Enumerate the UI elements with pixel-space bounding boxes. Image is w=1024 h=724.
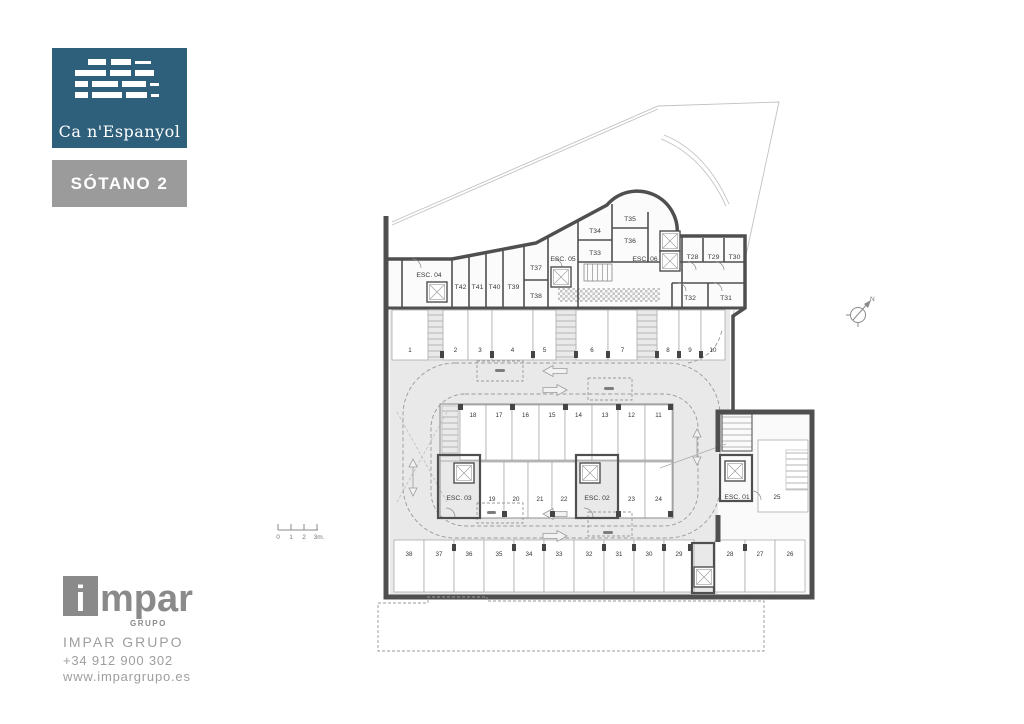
parking-spot-number: 38 bbox=[406, 551, 413, 558]
parking-spot-number: 18 bbox=[470, 412, 477, 419]
stair-label: ESC. 03 bbox=[446, 495, 472, 502]
parking-spot-number: 24 bbox=[655, 496, 662, 503]
parking-spot-number: 3 bbox=[478, 347, 482, 354]
parking-spot-number: 5 bbox=[543, 347, 547, 354]
parking-spot-number: 13 bbox=[602, 412, 609, 419]
parking-spot-number: 20 bbox=[513, 496, 520, 503]
parking-spot-number: 32 bbox=[586, 551, 593, 558]
scale-tick-label: 1 bbox=[289, 534, 293, 541]
parking-spot-number: 1 bbox=[408, 347, 412, 354]
parking-spot-number: 27 bbox=[757, 551, 764, 558]
parking-spot-number: 26 bbox=[787, 551, 794, 558]
parking-spot-number: 19 bbox=[489, 496, 496, 503]
parking-spot-number: 30 bbox=[646, 551, 653, 558]
parking-spot-number: 11 bbox=[655, 412, 662, 419]
elevator-icon bbox=[660, 231, 680, 251]
elevator-icon bbox=[660, 251, 680, 271]
room-label: T37 bbox=[530, 265, 542, 272]
parking-spot-number: 15 bbox=[549, 412, 556, 419]
elevator-icon bbox=[551, 267, 571, 287]
parking-spot-number: 31 bbox=[616, 551, 623, 558]
elevator-icon bbox=[580, 463, 600, 483]
room-label: T30 bbox=[729, 254, 741, 261]
parking-spot-number: 36 bbox=[466, 551, 473, 558]
parking-spot-number: 8 bbox=[666, 347, 670, 354]
parking-spot-number: 29 bbox=[676, 551, 683, 558]
room-label: T35 bbox=[624, 216, 636, 223]
impar-logo-text: mpar bbox=[100, 580, 193, 618]
impar-logo-sub: GRUPO bbox=[130, 619, 167, 628]
room-label: T28 bbox=[687, 254, 699, 261]
elevator-icon bbox=[454, 463, 474, 483]
elevator-icon bbox=[427, 282, 447, 302]
upper-floor-footprint bbox=[378, 597, 764, 651]
impar-logo-icon: i bbox=[63, 576, 98, 616]
north-arrow-icon: N bbox=[846, 296, 875, 327]
north-label: N bbox=[870, 296, 875, 303]
room-label: T41 bbox=[472, 284, 484, 291]
scale-tick-label: 3m. bbox=[314, 534, 325, 541]
parking-spot-number: 35 bbox=[496, 551, 503, 558]
elevator-icon bbox=[694, 567, 714, 587]
elevator-icon bbox=[725, 461, 745, 481]
room-label: T33 bbox=[589, 250, 601, 257]
room-label: T39 bbox=[508, 284, 520, 291]
parking-spot-number: 22 bbox=[561, 496, 568, 503]
room-label: T36 bbox=[624, 238, 636, 245]
room-label: T32 bbox=[684, 295, 696, 302]
parking-spot-number: 28 bbox=[727, 551, 734, 558]
scale-bar: 0 1 2 3m. bbox=[276, 524, 324, 541]
parking-spot-number: 12 bbox=[628, 412, 635, 419]
parking-spot-number: 17 bbox=[496, 412, 503, 419]
room-label: T42 bbox=[455, 284, 467, 291]
parking-spot-number: 23 bbox=[628, 496, 635, 503]
room-label: T31 bbox=[720, 295, 732, 302]
parking-spot-number: 21 bbox=[537, 496, 544, 503]
phone-number: +34 912 900 302 bbox=[63, 653, 173, 668]
room-label: T34 bbox=[589, 228, 601, 235]
parking-spot-number: 7 bbox=[621, 347, 625, 354]
room-label: T40 bbox=[489, 284, 501, 291]
stair-label: ESC. 02 bbox=[584, 495, 610, 502]
parking-spot-number: 9 bbox=[688, 347, 692, 354]
company-name: IMPAR GRUPO bbox=[63, 634, 184, 650]
parking-spot-number: 34 bbox=[526, 551, 533, 558]
website-url: www.impargrupo.es bbox=[63, 669, 191, 684]
parking-spot-number: 16 bbox=[522, 412, 529, 419]
scale-tick-label: 2 bbox=[302, 534, 306, 541]
room-label: T38 bbox=[530, 293, 542, 300]
parking-spot-number: 4 bbox=[511, 347, 515, 354]
parking-spot-number: 37 bbox=[436, 551, 443, 558]
parking-spot-number: 6 bbox=[590, 347, 594, 354]
room-label: T29 bbox=[708, 254, 720, 261]
stair-label: ESC. 04 bbox=[416, 272, 442, 279]
parking-spot-number: 10 bbox=[710, 347, 717, 354]
stair-label: ESC. 05 bbox=[550, 256, 576, 263]
parking-spot-number: 2 bbox=[454, 347, 458, 354]
stair-label: ESC. 01 bbox=[724, 494, 750, 501]
parking-spot-number: 14 bbox=[575, 412, 582, 419]
stair-label: ESC. 06 bbox=[632, 256, 658, 263]
scale-tick-label: 0 bbox=[276, 534, 280, 541]
parking-spot-number: 25 bbox=[774, 494, 781, 501]
parking-spot-number: 33 bbox=[556, 551, 563, 558]
